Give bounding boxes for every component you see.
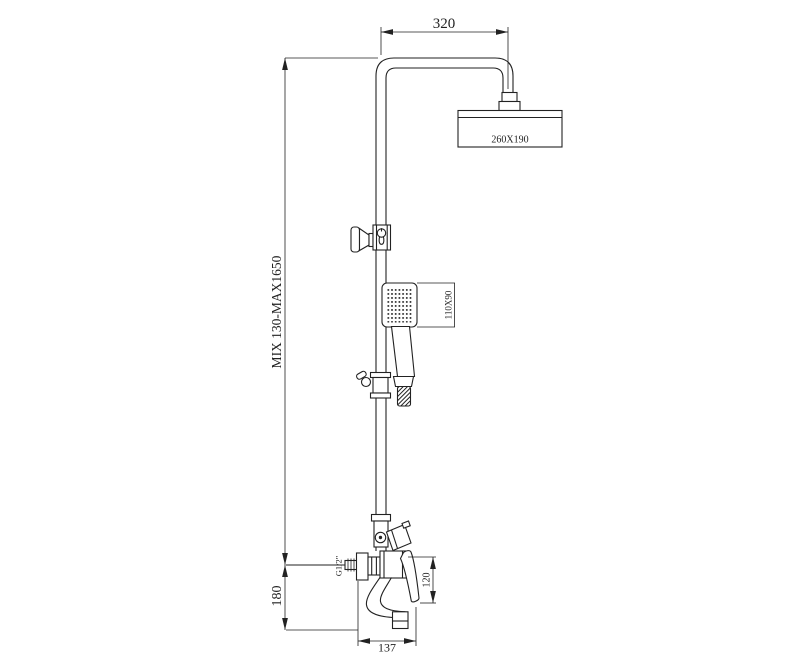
slider-body <box>373 378 388 394</box>
connection-nut <box>368 557 380 575</box>
head-connector-block <box>499 102 520 111</box>
spout-tip <box>393 612 409 629</box>
hose-fitting <box>398 387 411 407</box>
spout-drop-label: 180 <box>270 586 285 607</box>
bracket-end-cap <box>351 227 360 252</box>
hand-shower-handle-nut <box>394 377 414 387</box>
spout-left-edge <box>366 578 392 618</box>
dimension-connection-thread: G1/2" <box>334 556 344 576</box>
slider-clamp <box>356 370 391 398</box>
hand-shower-handle <box>392 327 415 377</box>
bracket-neck <box>369 234 373 247</box>
spout-reach-label: 137 <box>378 641 396 655</box>
slider-knob <box>362 378 371 387</box>
dimension-height-range: MIX 130-MAX1650 <box>269 58 378 565</box>
mixer-assembly <box>286 551 419 629</box>
shower-system-technical-drawing: 260X190 <box>0 0 800 667</box>
escutcheon <box>357 553 369 580</box>
dimension-arm-length: 320 <box>381 16 508 89</box>
diverter-knob-center <box>379 536 382 539</box>
diverter-collar <box>372 515 391 522</box>
drawing-svg: 260X190 <box>0 0 800 667</box>
dimension-spout-drop: 180 <box>270 565 358 630</box>
head-connector-nut <box>502 93 517 102</box>
diverter-assembly <box>372 515 412 551</box>
connection-thread-label: G1/2" <box>334 556 344 576</box>
body-height-label: 120 <box>422 573 433 588</box>
handshower-holder <box>387 525 412 551</box>
handshower-size-label: 110X90 <box>444 290 454 319</box>
head-size-label: 260X190 <box>491 135 528 146</box>
wall-bracket <box>351 225 391 252</box>
slider-flange-bottom <box>371 393 391 398</box>
arm-length-label: 320 <box>433 16 456 32</box>
hand-shower-spray-face <box>387 288 414 323</box>
height-range-label: MIX 130-MAX1650 <box>269 255 284 368</box>
slider-flange-top <box>371 373 391 378</box>
bracket-cone <box>360 229 370 251</box>
dimension-handshower-size: 110X90 <box>417 283 455 327</box>
handshower-holder-tab <box>402 521 410 528</box>
spout-right-edge <box>380 578 405 612</box>
overhead-shower: 260X190 <box>458 93 562 148</box>
